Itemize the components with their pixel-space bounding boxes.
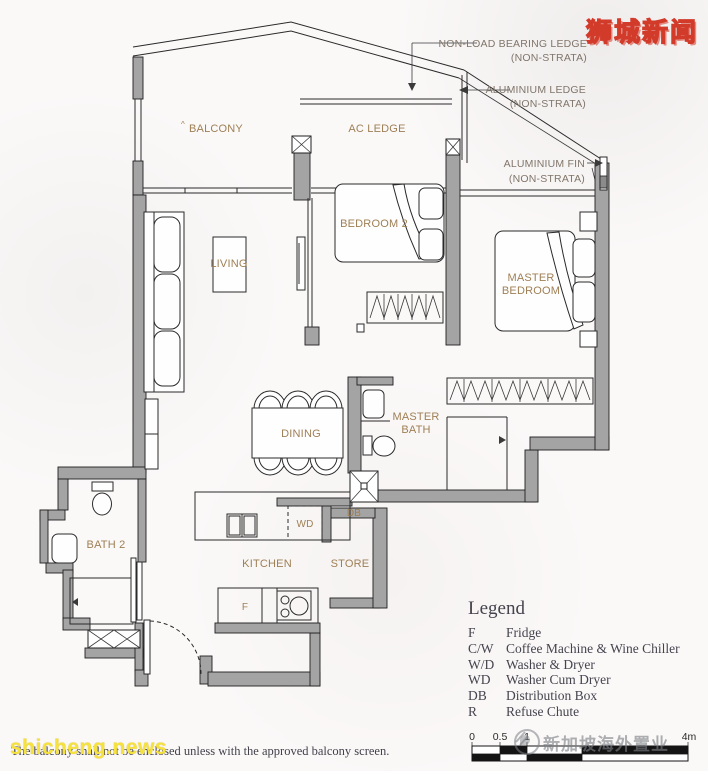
label-balcony: BALCONY	[189, 123, 243, 135]
label-kitchen: KITCHEN	[242, 558, 292, 570]
label-dining: DINING	[281, 428, 321, 440]
shower-door-marker	[499, 436, 506, 444]
toilet-icon	[92, 482, 113, 515]
annotation-aluminium-ledge: ALUMINIUM LEDGE	[486, 84, 586, 96]
scale-label-0: 0	[469, 731, 475, 743]
legend-abbr: R	[468, 704, 506, 720]
label-bath2: BATH 2	[87, 539, 126, 551]
sliding-door-panel	[131, 558, 136, 622]
label-bedroom2: BEDROOM 2	[340, 218, 408, 230]
scale-label-0-5: 0.5	[493, 731, 508, 743]
master-bath-fixtures	[361, 390, 507, 490]
legend-desc: Coffee Machine & Wine Chiller	[506, 641, 680, 657]
stove-icon	[277, 591, 311, 620]
site-logo-watermark: 狮城新闻	[586, 12, 698, 49]
bedroom2-wardrobe	[357, 292, 443, 332]
label-fridge: F	[242, 602, 248, 613]
legend-abbr: W/D	[468, 657, 506, 673]
legend: Legend F Fridge C/W Coffee Machine & Win…	[468, 598, 680, 720]
sink-icon	[52, 534, 77, 563]
legend-abbr: DB	[468, 688, 506, 704]
entry-door	[144, 620, 201, 674]
legend-abbr: WD	[468, 672, 506, 688]
legend-item-washer-dryer: W/D Washer & Dryer	[468, 657, 680, 673]
scale-label-4m: 4m	[682, 731, 697, 743]
legend-desc: Washer & Dryer	[506, 657, 595, 673]
legend-item-washer-cum-dryer: WD Washer Cum Dryer	[468, 672, 680, 688]
balcony-superscript: ^	[181, 120, 185, 129]
aluminium-fin	[600, 157, 607, 190]
legend-abbr: F	[468, 625, 506, 641]
legend-abbr: C/W	[468, 641, 506, 657]
refuse-chute-hatch	[88, 630, 140, 648]
annotation-aluminium-ledge-sub: (NON-STRATA)	[510, 98, 586, 110]
label-db: DB	[347, 508, 361, 519]
toilet-icon	[363, 436, 395, 456]
legend-desc: Refuse Chute	[506, 704, 579, 720]
legend-title: Legend	[468, 598, 680, 620]
sliding-door-panel	[137, 562, 142, 620]
shower-area	[70, 578, 133, 624]
annotation-aluminium-fin: ALUMINIUM FIN	[504, 158, 585, 170]
label-master-bath-1: MASTER	[392, 411, 439, 423]
sofa	[144, 212, 184, 392]
tv-console	[297, 237, 305, 290]
label-ac-ledge: AC LEDGE	[348, 123, 405, 135]
legend-item-coffee-wine: C/W Coffee Machine & Wine Chiller	[468, 641, 680, 657]
label-living: LIVING	[210, 258, 247, 270]
agency-wing-icon	[514, 729, 530, 747]
legend-desc: Distribution Box	[506, 688, 597, 704]
label-master-bedroom-1: MASTER	[507, 272, 554, 284]
label-master-bath-2: BATH	[401, 424, 430, 436]
annotation-non-load-bearing-ledge: NON-LOAD BEARING LEDGE	[438, 38, 587, 50]
sink-icon	[363, 390, 384, 418]
floor-plan-page: ^ BALCONY AC LEDGE LIVING BEDROOM 2 MAST…	[0, 0, 708, 771]
annotation-non-load-bearing-ledge-sub: (NON-STRATA)	[511, 52, 587, 64]
shicheng-news-watermark: shicheng.news	[10, 736, 167, 760]
walls	[40, 57, 609, 686]
legend-item-fridge: F Fridge	[468, 625, 680, 641]
agency-watermark: 新加坡海外置业	[514, 729, 669, 755]
label-store: STORE	[331, 558, 370, 570]
master-wardrobe	[447, 378, 593, 404]
legend-desc: Fridge	[506, 625, 541, 641]
legend-item-distribution-box: DB Distribution Box	[468, 688, 680, 704]
legend-desc: Washer Cum Dryer	[506, 672, 611, 688]
legend-item-refuse-chute: R Refuse Chute	[468, 704, 680, 720]
annotation-aluminium-fin-sub: (NON-STRATA)	[509, 173, 585, 185]
label-wd: WD	[296, 519, 313, 530]
kitchen-sink-icon	[227, 514, 257, 537]
label-master-bedroom-2: BEDROOM	[502, 285, 560, 297]
lower-counter	[218, 588, 318, 623]
agency-watermark-text: 新加坡海外置业	[543, 730, 669, 755]
